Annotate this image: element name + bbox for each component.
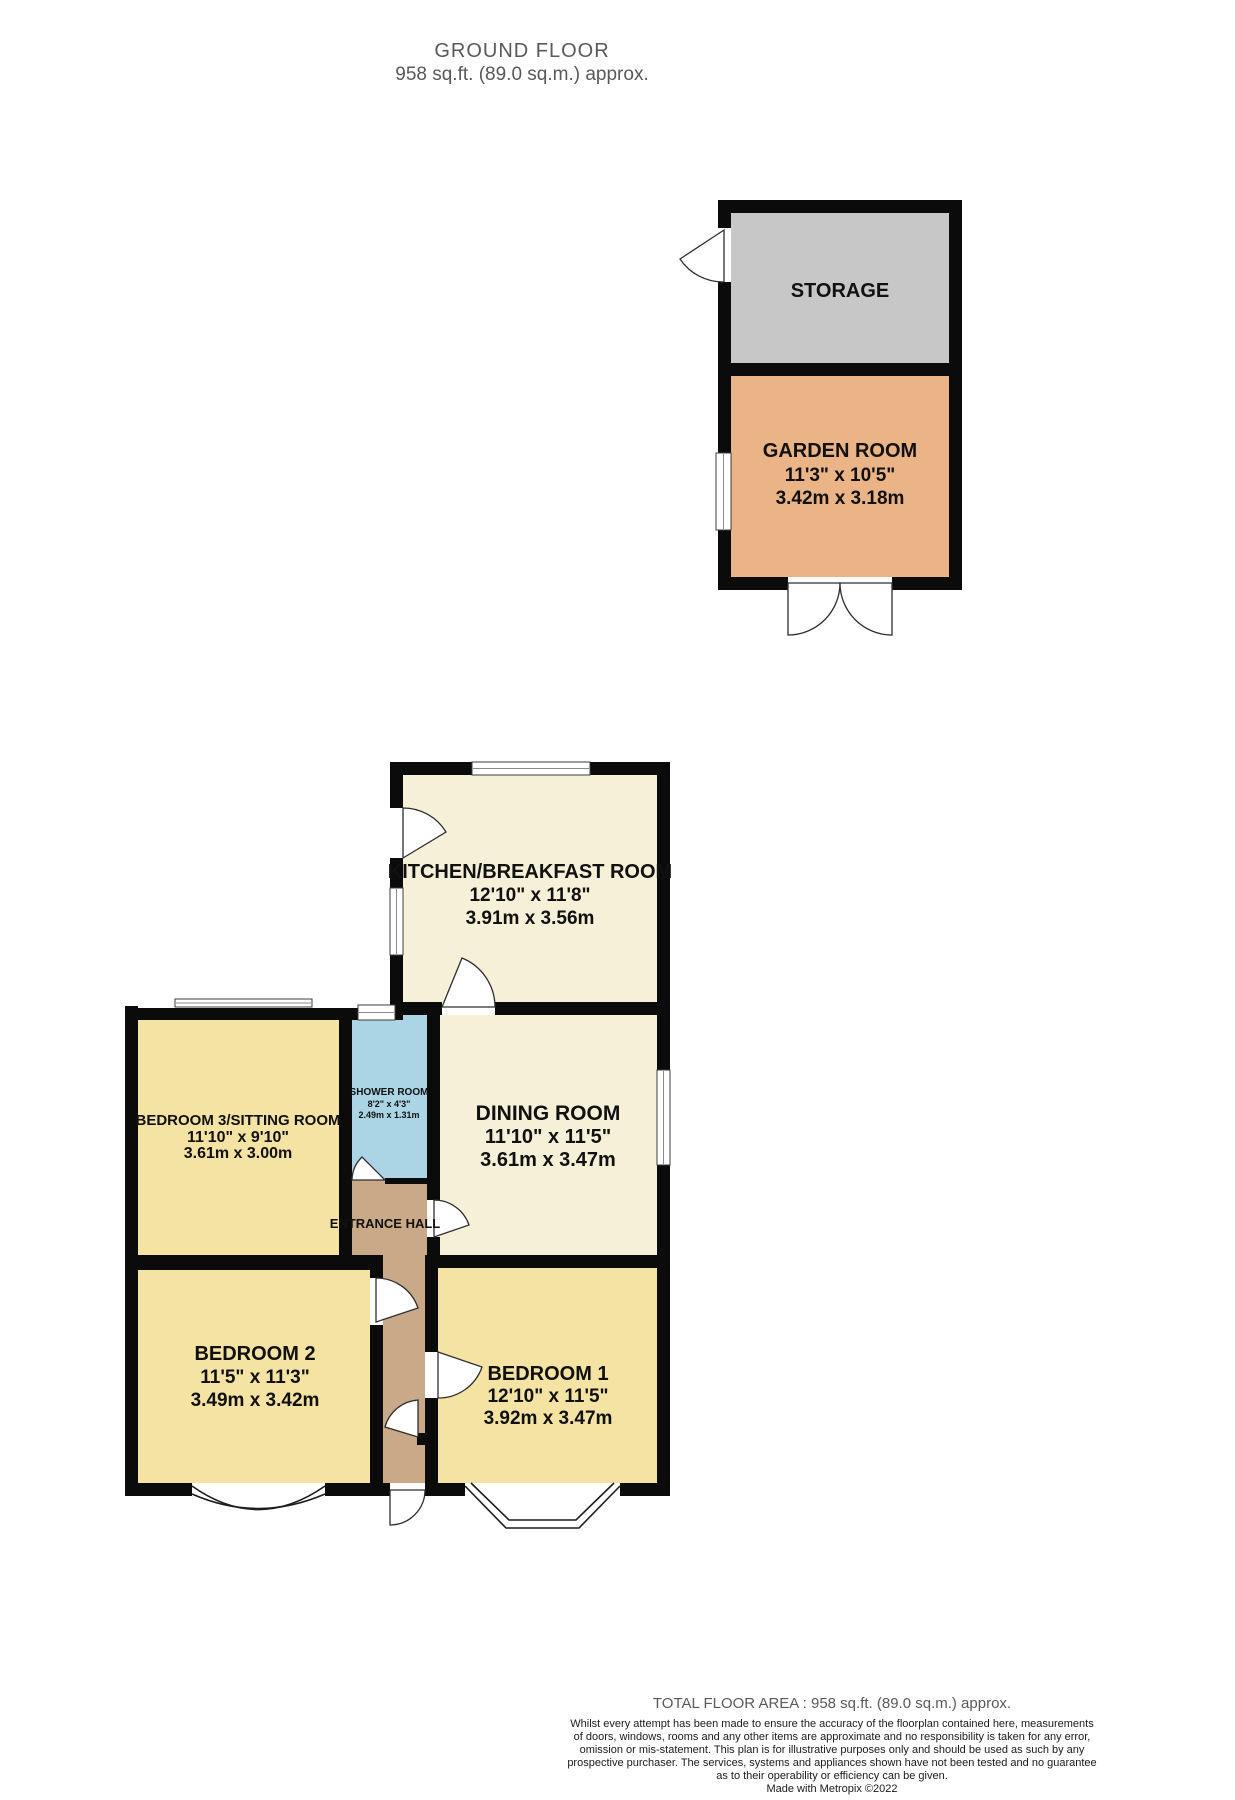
disclaimer-line: prospective purchaser. The services, sys… [567,1757,1096,1769]
kitchen-size-imperial: 12'10" x 11'8" [469,885,590,906]
bedroom2-size-imperial: 11'5" x 11'3" [200,1367,309,1388]
bedroom1-bay-window [465,1483,620,1529]
garden-room-size-metric: 3.42m x 3.18m [776,488,905,509]
bedroom1-label: BEDROOM 1 [487,1363,608,1385]
dining-label: DINING ROOM [476,1102,621,1125]
entrance-hall-label: ENTRANCE HALL [330,1216,441,1231]
dining-right-window [657,1070,670,1165]
garden-room-window [716,453,731,530]
kitchen-top-window [472,762,590,775]
bedroom3-size-metric: 3.61m x 3.00m [184,1145,293,1162]
bedroom2-size-metric: 3.49m x 3.42m [191,1390,320,1411]
disclaimer-line: Whilst every attempt has been made to en… [570,1718,1094,1730]
kitchen-label: KITCHEN/BREAKFAST ROOM [388,861,672,883]
storage-door-arc [680,230,724,282]
dining-size-imperial: 11'10" x 11'5" [485,1126,611,1148]
shower-room-label: SHOWER ROOM [350,1087,429,1098]
disclaimer-line: of doors, windows, rooms and any other i… [574,1731,1091,1743]
shower-room-size-imperial: 8'2" x 4'3" [368,1099,411,1109]
garden-door-arc-right [840,583,892,635]
metropix-credit: Made with Metropix ©2022 [766,1783,897,1795]
bedroom3-size-imperial: 11'10" x 9'10" [187,1129,289,1146]
shower-top-window [358,1005,395,1020]
bedroom2-bay-window [192,1483,325,1510]
page-title: GROUND FLOOR [434,40,609,62]
bedroom3-top-window [175,999,312,1007]
main-house: KITCHEN/BREAKFAST ROOM 12'10" x 11'8" 3.… [125,762,672,1529]
disclaimer-line: omission or mis-statement. This plan is … [580,1744,1085,1756]
bedroom3-label: BEDROOM 3/SITTING ROOM [135,1112,340,1129]
kitchen-size-metric: 3.91m x 3.56m [466,908,595,929]
shower-room-size-metric: 2.49m x 1.31m [358,1110,419,1120]
footer: TOTAL FLOOR AREA : 958 sq.ft. (89.0 sq.m… [567,1695,1096,1795]
front-door-arc [390,1490,425,1525]
bedroom1-size-metric: 3.92m x 3.47m [484,1408,613,1429]
storage-label: STORAGE [791,280,890,302]
kitchen-left-window [390,888,403,955]
garden-room-size-imperial: 11'3" x 10'5" [785,465,896,486]
garden-room-label: GARDEN ROOM [763,440,917,462]
floorplan-page: GROUND FLOOR 958 sq.ft. (89.0 sq.m.) app… [0,0,1235,1800]
floorplan-canvas: GROUND FLOOR 958 sq.ft. (89.0 sq.m.) app… [0,0,1235,1800]
page-subtitle: 958 sq.ft. (89.0 sq.m.) approx. [395,64,648,85]
dining-size-metric: 3.61m x 3.47m [480,1149,616,1171]
bedroom2-label: BEDROOM 2 [194,1343,315,1365]
disclaimer-line: as to their operability or efficiency ca… [716,1770,948,1782]
garden-door-arc-left [788,583,840,635]
bedroom1-size-imperial: 12'10" x 11'5" [487,1386,608,1407]
total-floor-area: TOTAL FLOOR AREA : 958 sq.ft. (89.0 sq.m… [653,1695,1011,1712]
outbuilding: STORAGE GARDEN ROOM 11'3" x 10'5" 3.42m … [680,200,962,635]
